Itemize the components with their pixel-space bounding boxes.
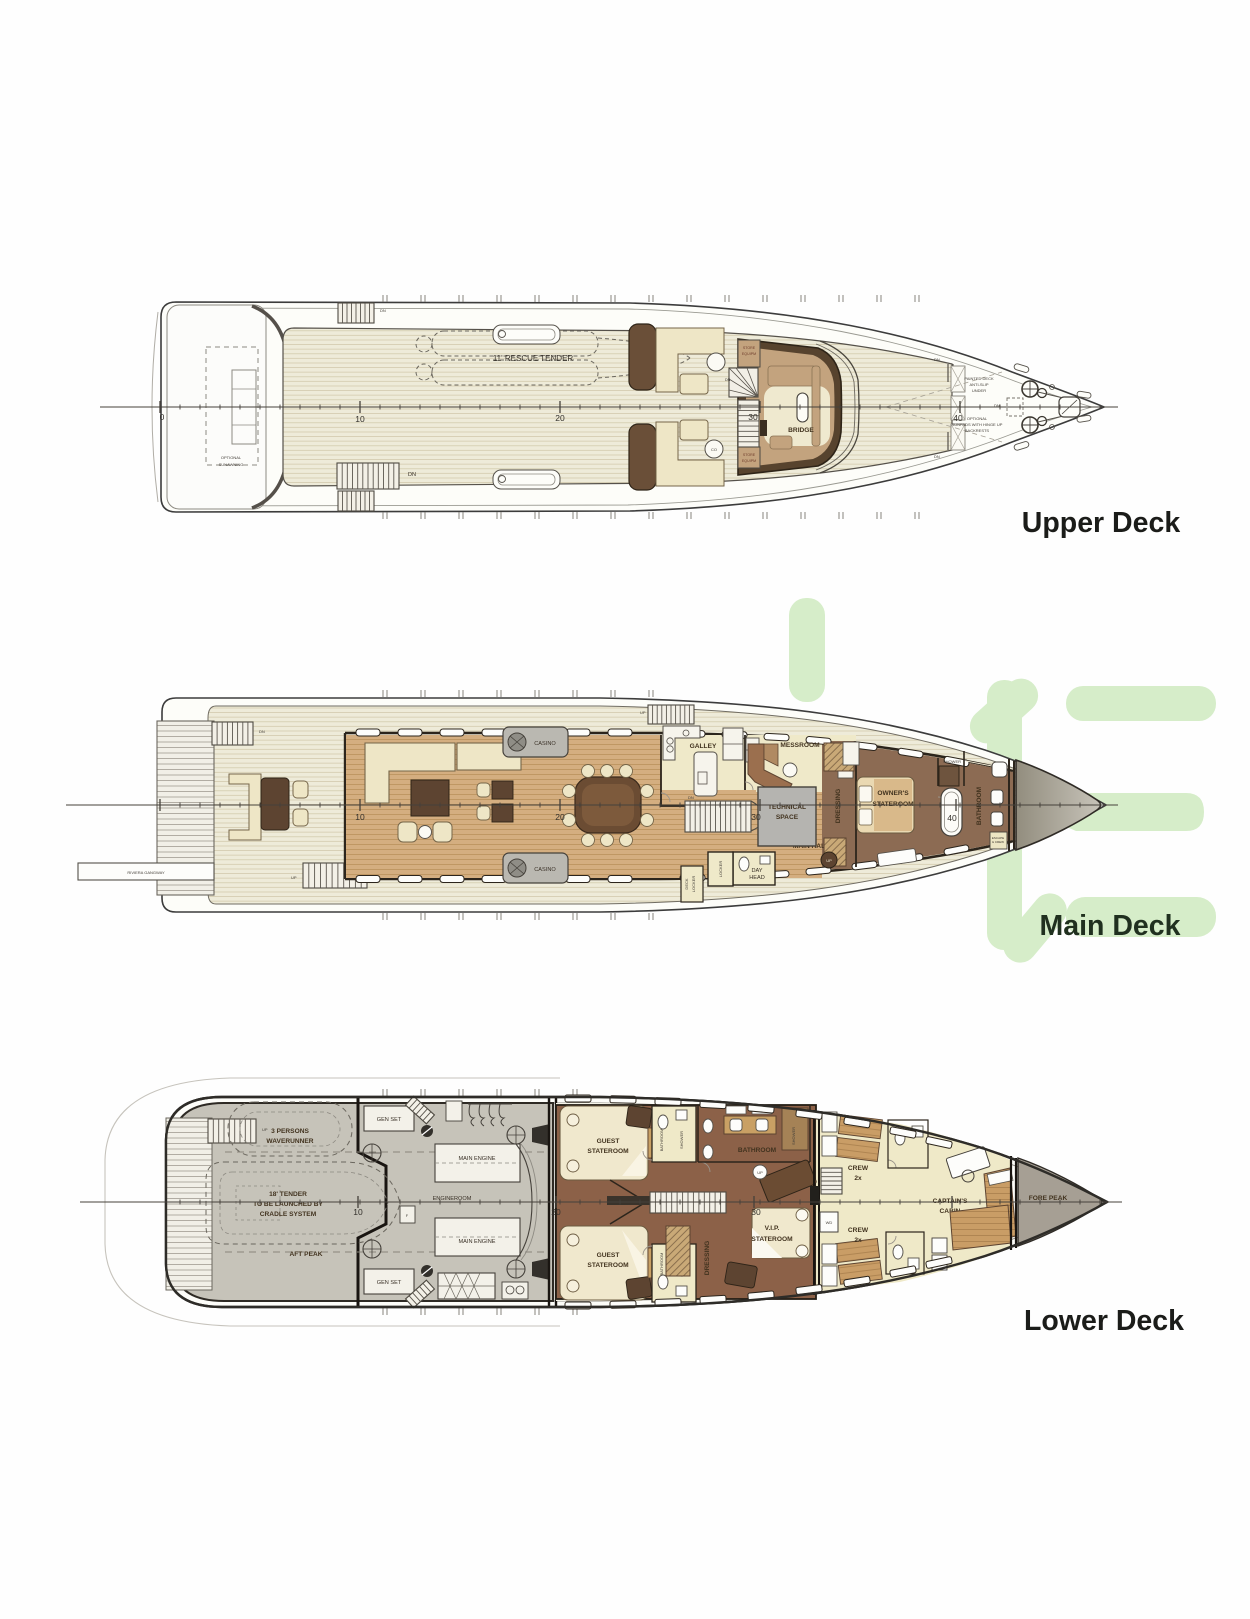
svg-text:LOCKER: LOCKER [718, 861, 723, 878]
svg-text:SUNAWNING: SUNAWNING [219, 462, 244, 467]
svg-text:OPTIONAL: OPTIONAL [221, 455, 242, 460]
svg-text:Upper Deck: Upper Deck [1022, 507, 1181, 539]
svg-text:SHOWER: SHOWER [679, 1131, 684, 1149]
svg-text:WD: WD [826, 1220, 833, 1225]
svg-text:WAVERUNNER: WAVERUNNER [266, 1138, 313, 1145]
svg-text:10: 10 [355, 414, 365, 424]
svg-text:MAIN ENGINE: MAIN ENGINE [459, 1156, 496, 1162]
svg-text:Lower Deck: Lower Deck [1024, 1305, 1184, 1337]
svg-text:DN: DN [380, 308, 386, 313]
svg-text:20: 20 [555, 812, 565, 822]
svg-text:GALLEY: GALLEY [690, 743, 717, 750]
svg-text:10: 10 [353, 1207, 363, 1217]
svg-text:40: 40 [953, 413, 963, 423]
svg-text:DECK: DECK [684, 878, 689, 889]
svg-text:STORE: STORE [743, 453, 756, 457]
svg-text:DN: DN [934, 357, 940, 362]
svg-text:SPACE: SPACE [776, 814, 799, 821]
svg-text:2x: 2x [854, 1175, 862, 1182]
svg-text:RIVIERA GANGWAY: RIVIERA GANGWAY [127, 870, 165, 875]
svg-text:ENGINEROOM: ENGINEROOM [433, 1196, 472, 1202]
svg-text:UP: UP [262, 1127, 268, 1132]
svg-text:GEN SET: GEN SET [377, 1117, 402, 1123]
svg-text:30: 30 [751, 812, 761, 822]
svg-text:EQUIPM: EQUIPM [742, 352, 756, 356]
svg-text:DN: DN [934, 454, 940, 459]
svg-text:DRESSING: DRESSING [704, 1241, 711, 1275]
svg-text:LOCKER: LOCKER [691, 876, 696, 893]
svg-text:BATHROOM: BATHROOM [738, 1147, 777, 1154]
svg-text:V.I.P.: V.I.P. [765, 1225, 780, 1232]
svg-text:MAIN ENGINE: MAIN ENGINE [459, 1239, 496, 1245]
svg-text:Main Deck: Main Deck [1040, 910, 1181, 942]
svg-text:PAINTED DECK: PAINTED DECK [964, 376, 994, 381]
svg-text:OWNER'S: OWNER'S [877, 790, 909, 797]
svg-text:CASINO: CASINO [534, 741, 556, 747]
svg-text:UNDER: UNDER [972, 388, 986, 393]
svg-text:EQUIPM: EQUIPM [742, 459, 756, 463]
svg-text:11' RESCUE TENDER: 11' RESCUE TENDER [493, 354, 574, 363]
svg-text:UP: UP [757, 1170, 763, 1175]
svg-text:40: 40 [947, 813, 957, 823]
svg-text:SHOWER: SHOWER [791, 1127, 796, 1145]
svg-text:UP: UP [291, 875, 297, 880]
svg-text:DAY: DAY [751, 868, 762, 874]
svg-text:HEAD: HEAD [749, 875, 765, 881]
svg-text:AFT PEAK: AFT PEAK [290, 1251, 323, 1258]
svg-text:STATEROOM: STATEROOM [751, 1236, 793, 1243]
svg-text:STORE: STORE [743, 346, 756, 350]
svg-text:DN: DN [259, 729, 265, 734]
svg-text:UP: UP [826, 858, 832, 863]
svg-text:BATHROOM: BATHROOM [976, 786, 983, 825]
svg-text:BATHROOM: BATHROOM [659, 1253, 664, 1276]
svg-text:DN: DN [725, 378, 731, 382]
svg-text:OPTIONAL: OPTIONAL [967, 416, 988, 421]
svg-text:UP: UP [640, 710, 646, 715]
svg-text:DN: DN [688, 795, 694, 800]
svg-text:DRESSING: DRESSING [835, 789, 842, 823]
svg-text:30: 30 [751, 1207, 761, 1217]
svg-text:18' TENDER: 18' TENDER [269, 1191, 307, 1198]
svg-text:10: 10 [355, 812, 365, 822]
svg-text:GUEST: GUEST [597, 1252, 620, 1259]
svg-text:FORE PEAK: FORE PEAK [1029, 1195, 1068, 1202]
svg-text:& CREW: & CREW [992, 840, 1004, 844]
svg-text:SHOWER: SHOWER [943, 759, 961, 764]
svg-text:STATEROOM: STATEROOM [587, 1262, 629, 1269]
svg-text:CREW: CREW [848, 1165, 869, 1172]
svg-text:ANTI-SLIP: ANTI-SLIP [969, 382, 988, 387]
svg-text:MESSROOM: MESSROOM [780, 742, 820, 749]
svg-text:CREW: CREW [848, 1227, 869, 1234]
svg-text:2x: 2x [854, 1237, 862, 1244]
svg-text:BRIDGE: BRIDGE [788, 427, 814, 434]
svg-text:CO: CO [711, 447, 717, 452]
svg-text:STATEROOM: STATEROOM [587, 1148, 629, 1155]
svg-text:GUEST: GUEST [597, 1138, 620, 1145]
svg-text:20: 20 [555, 413, 565, 423]
svg-text:BATHROOM: BATHROOM [659, 1129, 664, 1152]
svg-text:BACKRESTS: BACKRESTS [965, 428, 990, 433]
svg-text:30: 30 [748, 412, 758, 422]
svg-text:CASINO: CASINO [534, 867, 556, 873]
svg-text:20: 20 [551, 1207, 561, 1217]
svg-text:GEN SET: GEN SET [377, 1280, 402, 1286]
svg-text:DN: DN [408, 472, 416, 478]
svg-text:CRADLE SYSTEM: CRADLE SYSTEM [260, 1211, 317, 1218]
svg-text:3 PERSONS: 3 PERSONS [271, 1128, 309, 1135]
svg-text:0: 0 [160, 412, 165, 422]
